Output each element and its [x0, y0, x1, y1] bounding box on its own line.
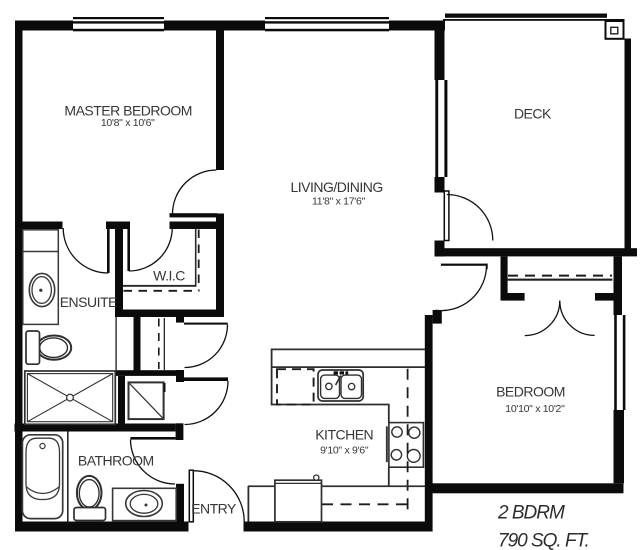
svg-text:BEDROOM: BEDROOM — [496, 384, 565, 400]
svg-text:11'8" x 17'6": 11'8" x 17'6" — [312, 195, 365, 207]
svg-text:DECK: DECK — [514, 106, 552, 122]
svg-text:ENTRY: ENTRY — [191, 500, 237, 516]
svg-text:9'10" x 9'6": 9'10" x 9'6" — [320, 445, 369, 457]
svg-text:ENSUITE: ENSUITE — [60, 294, 117, 310]
svg-text:W.I.C: W.I.C — [153, 268, 185, 284]
svg-text:BATHROOM: BATHROOM — [78, 452, 154, 468]
svg-text:10'10" x 10'2": 10'10" x 10'2" — [505, 403, 565, 415]
svg-text:LIVING/DINING: LIVING/DINING — [290, 179, 382, 195]
svg-text:2 BDRM: 2 BDRM — [497, 503, 565, 524]
svg-text:790 SQ. FT.: 790 SQ. FT. — [498, 531, 589, 550]
svg-text:KITCHEN: KITCHEN — [315, 427, 373, 443]
svg-text:10'8" x 10'6": 10'8" x 10'6" — [101, 117, 155, 129]
